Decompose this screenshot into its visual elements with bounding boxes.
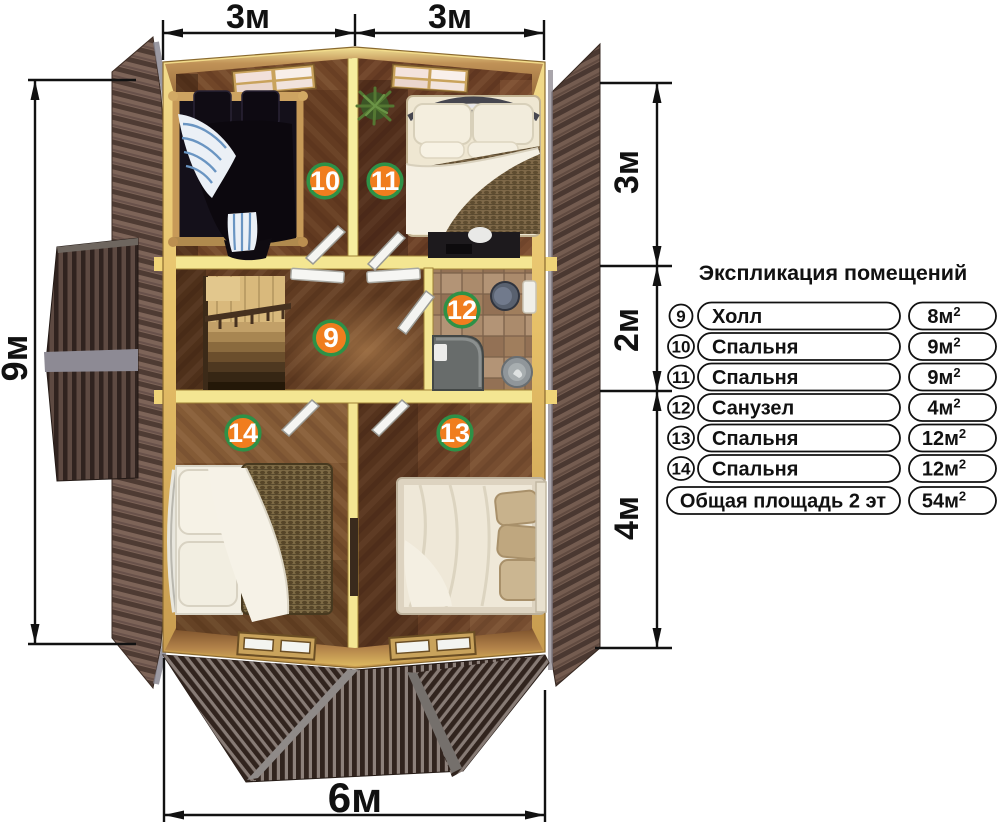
svg-text:13: 13: [440, 418, 470, 448]
svg-text:9м: 9м: [0, 335, 35, 382]
svg-text:6м: 6м: [328, 774, 382, 821]
svg-text:9: 9: [323, 322, 339, 353]
svg-text:13: 13: [672, 429, 691, 448]
svg-text:Экспликация помещений: Экспликация помещений: [699, 261, 967, 285]
svg-text:11: 11: [371, 166, 400, 196]
svg-text:4м: 4м: [608, 496, 646, 540]
svg-text:Санузел: Санузел: [712, 398, 794, 420]
svg-text:12: 12: [672, 399, 691, 418]
svg-text:Спальня: Спальня: [712, 367, 798, 389]
svg-text:Спальня: Спальня: [712, 459, 798, 481]
svg-text:9: 9: [676, 307, 685, 326]
svg-text:Спальня: Спальня: [712, 337, 798, 359]
svg-text:11: 11: [672, 368, 690, 387]
svg-text:14: 14: [672, 460, 691, 479]
svg-text:3м: 3м: [608, 150, 646, 194]
svg-text:2м: 2м: [608, 308, 646, 352]
svg-text:Холл: Холл: [712, 306, 762, 328]
svg-text:3м: 3м: [226, 0, 270, 36]
svg-text:3м: 3м: [428, 0, 472, 36]
svg-text:Спальня: Спальня: [712, 428, 798, 450]
svg-text:10: 10: [310, 166, 340, 196]
svg-text:10: 10: [672, 338, 691, 357]
svg-text:14: 14: [228, 418, 258, 448]
svg-text:12: 12: [447, 295, 477, 325]
svg-text:Общая площадь 2 эт: Общая площадь 2 эт: [680, 491, 886, 513]
